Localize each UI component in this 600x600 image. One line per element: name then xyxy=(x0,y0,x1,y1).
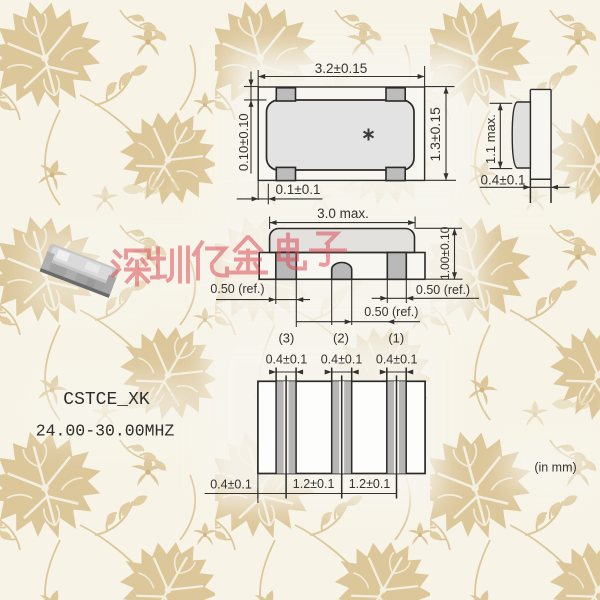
svg-text:(2): (2) xyxy=(333,331,349,346)
svg-text:1.2±0.1: 1.2±0.1 xyxy=(293,477,335,491)
svg-text:CSTCE_XK: CSTCE_XK xyxy=(63,390,150,410)
svg-text:0.4±0.1: 0.4±0.1 xyxy=(481,173,526,188)
svg-text:0.10±0.10: 0.10±0.10 xyxy=(236,113,251,171)
svg-text:1.3±0.15: 1.3±0.15 xyxy=(427,107,443,162)
svg-text:0.4±0.1: 0.4±0.1 xyxy=(266,352,308,366)
svg-text:(in mm): (in mm) xyxy=(534,461,576,475)
svg-text:3.0 max.: 3.0 max. xyxy=(317,206,369,221)
svg-text:0.50 (ref.): 0.50 (ref.) xyxy=(210,282,264,296)
svg-text:0.4±0.1: 0.4±0.1 xyxy=(210,478,252,492)
svg-text:24.00-30.00MHZ: 24.00-30.00MHZ xyxy=(36,422,175,441)
svg-text:(1): (1) xyxy=(388,331,404,346)
svg-text:1.00±0.10: 1.00±0.10 xyxy=(438,226,452,280)
svg-text:0.4±0.1: 0.4±0.1 xyxy=(376,352,418,366)
svg-text:3.2±0.15: 3.2±0.15 xyxy=(315,61,367,76)
svg-text:1.2±0.1: 1.2±0.1 xyxy=(349,477,391,491)
svg-text:0.4±0.1: 0.4±0.1 xyxy=(321,352,363,366)
svg-text:0.50 (ref.): 0.50 (ref.) xyxy=(416,283,470,297)
svg-text:0.50 (ref.): 0.50 (ref.) xyxy=(364,305,418,319)
svg-text:(3): (3) xyxy=(278,331,294,346)
svg-text:1.1 max.: 1.1 max. xyxy=(483,114,498,164)
svg-text:0.1±0.1: 0.1±0.1 xyxy=(276,182,321,197)
